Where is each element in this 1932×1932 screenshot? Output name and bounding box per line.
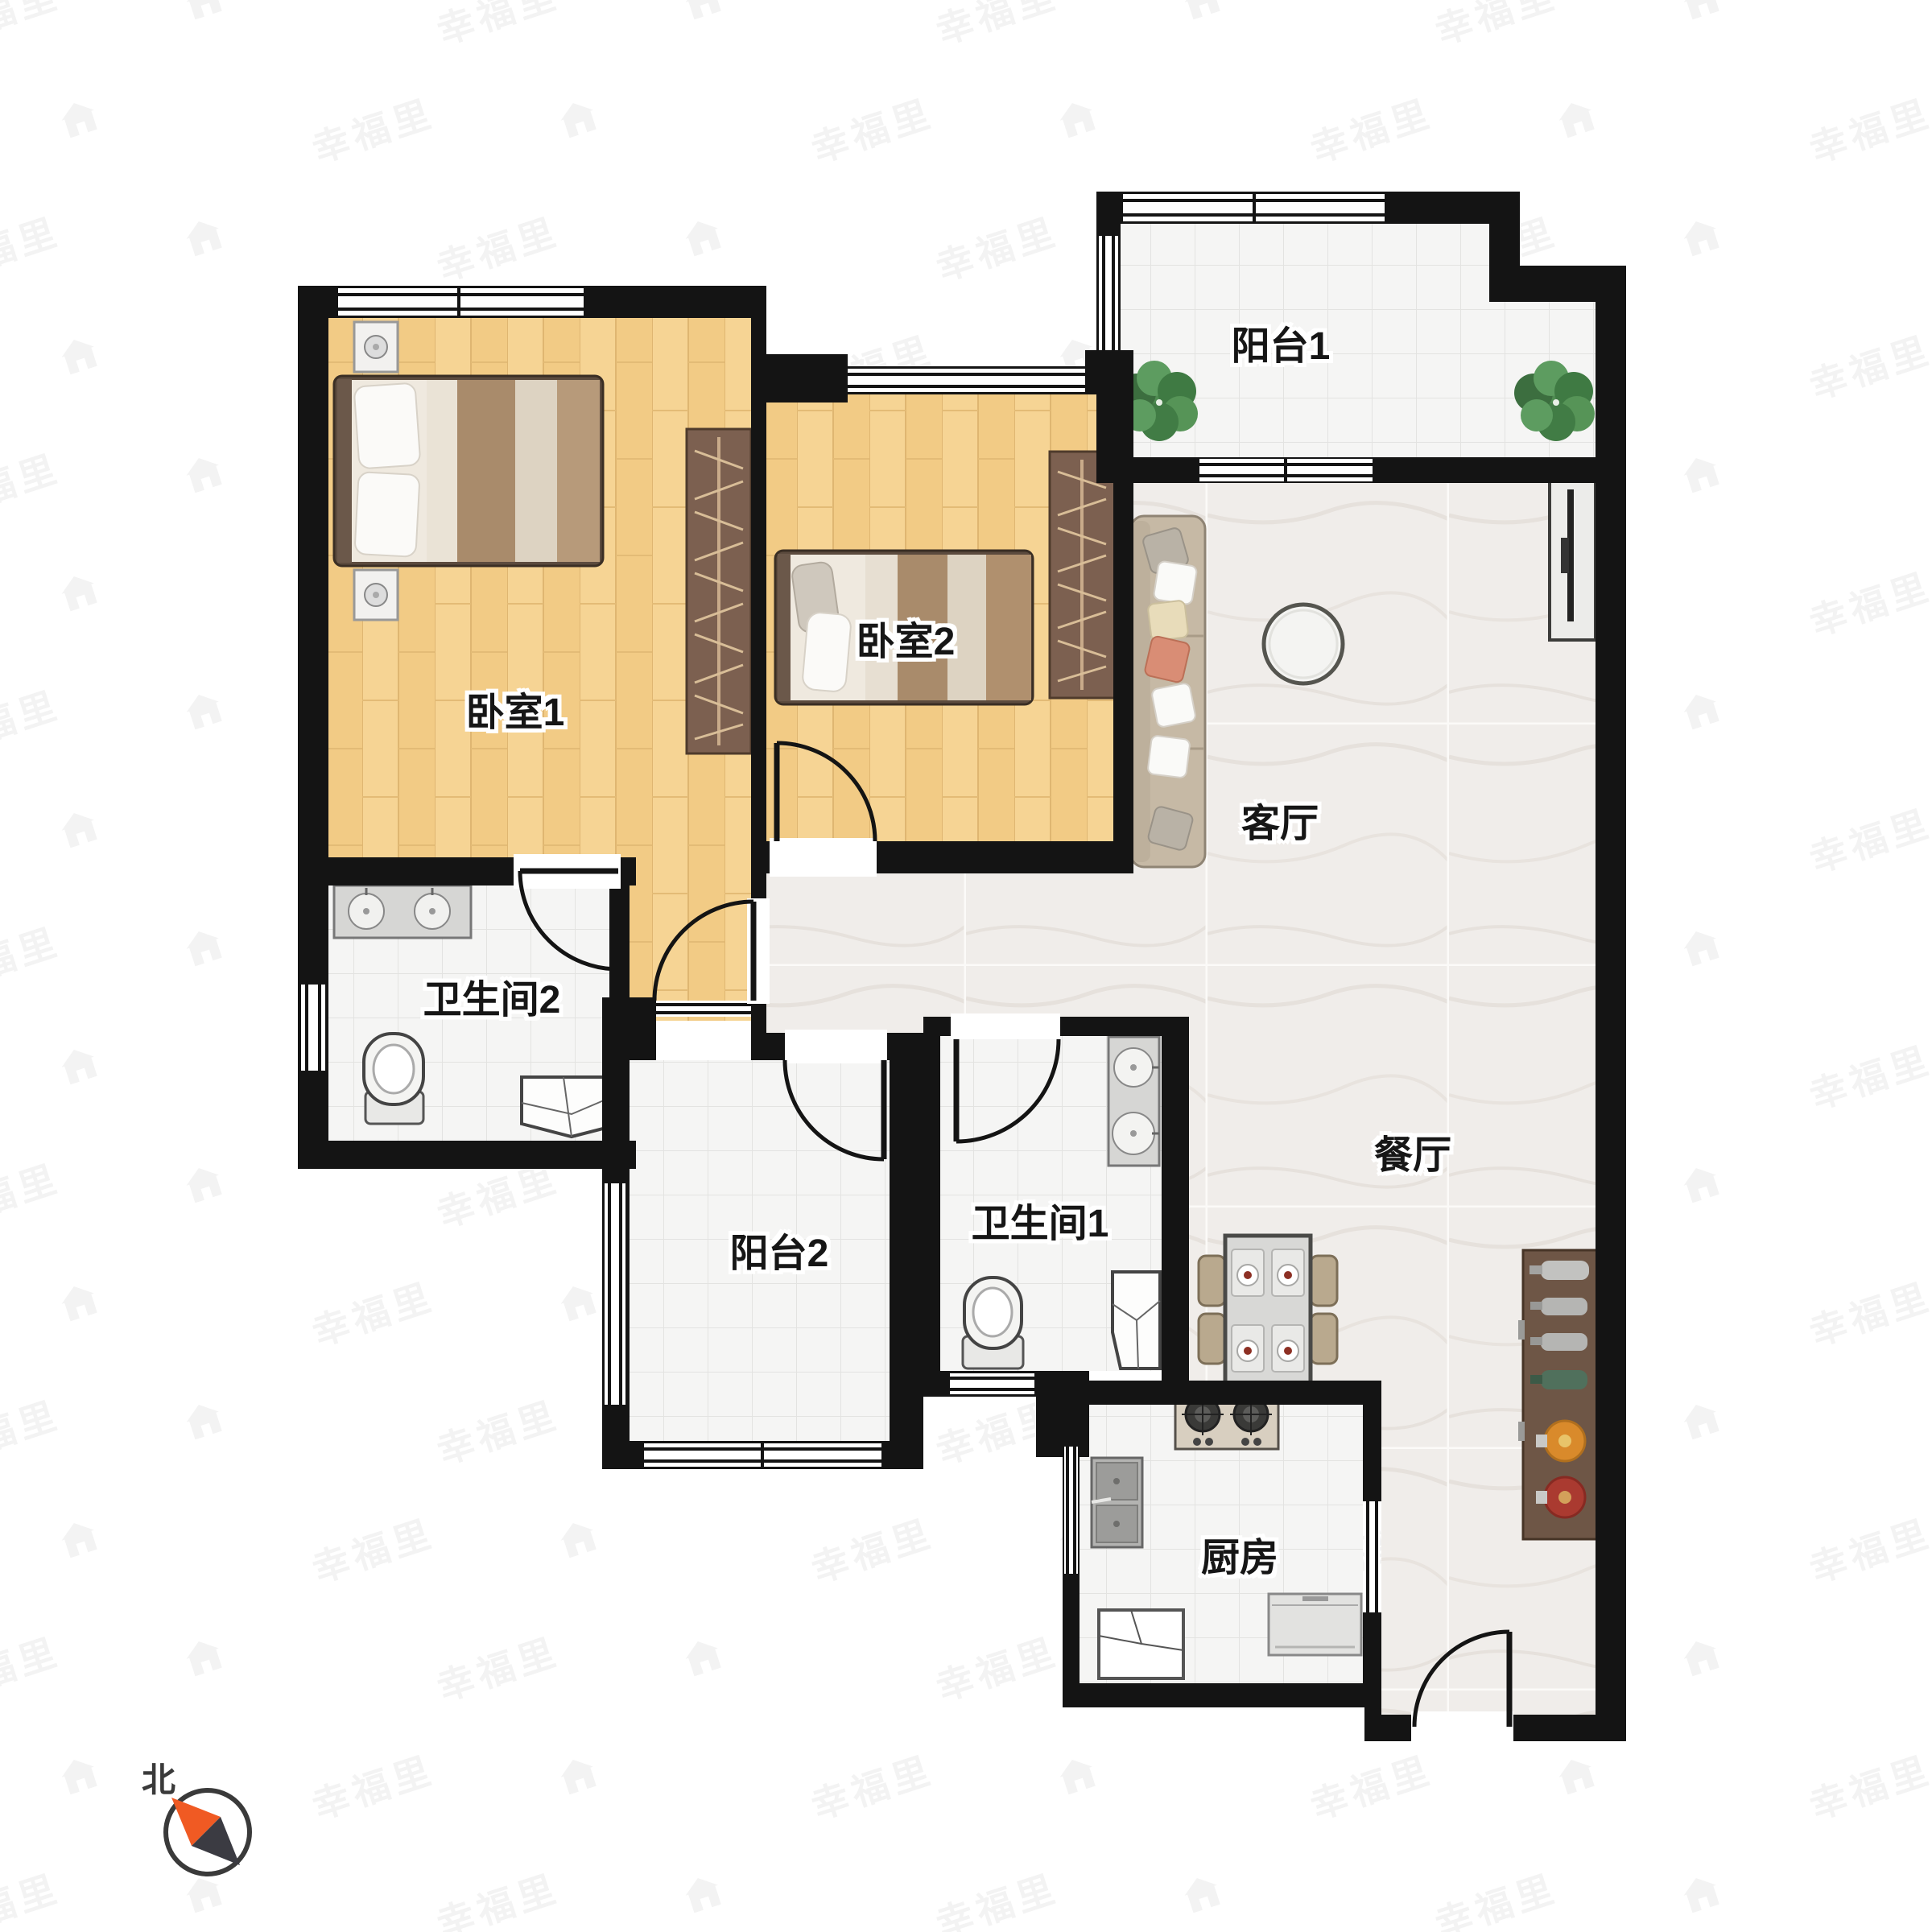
wine-cabinet-icon <box>1518 1250 1598 1539</box>
window-balcony2-left <box>605 1183 625 1405</box>
dining-table-icon <box>1225 1236 1311 1385</box>
opening-nook-balcony2 <box>656 1001 751 1017</box>
sofa-icon <box>1131 516 1205 867</box>
wardrobe-icon <box>687 429 751 753</box>
toilet-icon <box>963 1278 1023 1368</box>
opening-kitchen-doorway <box>1364 1501 1380 1612</box>
window-bedroom2-top <box>848 369 1085 392</box>
room-label-bathroom2: 卫生间2 <box>423 968 561 1024</box>
floorplan-page: 幸福里幸福里幸福里幸福里幸福里幸福里幸福里幸福里幸福里幸福里幸福里幸福里幸福里幸… <box>0 0 1932 1932</box>
window-balcony1-left <box>1099 236 1118 350</box>
window-bathroom2-left <box>301 985 325 1071</box>
compass-north-label: 北 <box>142 1753 175 1802</box>
toilet-icon <box>364 1034 423 1124</box>
room-label-balcony1: 阳台1 <box>1232 314 1331 370</box>
room-label-bedroom1: 卧室1 <box>466 680 565 737</box>
chair-icon <box>1199 1256 1225 1306</box>
shower-tray-icon <box>1113 1272 1160 1368</box>
nightstand-icon <box>354 570 398 620</box>
chair-icon <box>1199 1314 1225 1364</box>
chair-icon <box>1311 1256 1337 1306</box>
nightstand-icon <box>354 322 398 372</box>
round-coffee-table-icon <box>1264 605 1343 683</box>
room-label-dining: 餐厅 <box>1374 1123 1451 1179</box>
window-balcony2-bottom <box>644 1443 881 1467</box>
corner-counter-icon <box>1099 1610 1183 1678</box>
shower-tray-icon <box>522 1077 609 1137</box>
hallway-floor <box>766 873 1133 1033</box>
chair-icon <box>1311 1314 1337 1364</box>
sliding-door-balcony1 <box>1199 459 1373 481</box>
window-bedroom1-top <box>338 288 584 316</box>
window-kitchen-left <box>1064 1447 1078 1574</box>
twin-sink-vanity-icon <box>334 885 471 938</box>
room-label-living: 客厅 <box>1241 791 1319 848</box>
fridge-icon <box>1269 1594 1361 1655</box>
wardrobe-icon <box>1050 452 1115 698</box>
compass-needle-icon <box>166 1790 250 1874</box>
room-label-bathroom1: 卫生间1 <box>972 1191 1109 1248</box>
room-label-balcony2: 阳台2 <box>730 1221 829 1278</box>
window-balcony1-top <box>1123 194 1385 221</box>
room-label-bedroom2: 卧室2 <box>857 609 956 666</box>
kitchen-sink-icon <box>1092 1458 1142 1547</box>
floorplan-drawing <box>0 0 1932 1932</box>
double-bed-icon <box>334 376 603 566</box>
room-label-kitchen: 厨房 <box>1201 1525 1278 1582</box>
window-bathroom1-bottom <box>950 1373 1034 1394</box>
bedroom1-entry-nook-floor <box>630 857 751 1021</box>
twin-sink-vanity-icon <box>1108 1037 1159 1166</box>
tv-board-icon <box>1550 471 1596 640</box>
